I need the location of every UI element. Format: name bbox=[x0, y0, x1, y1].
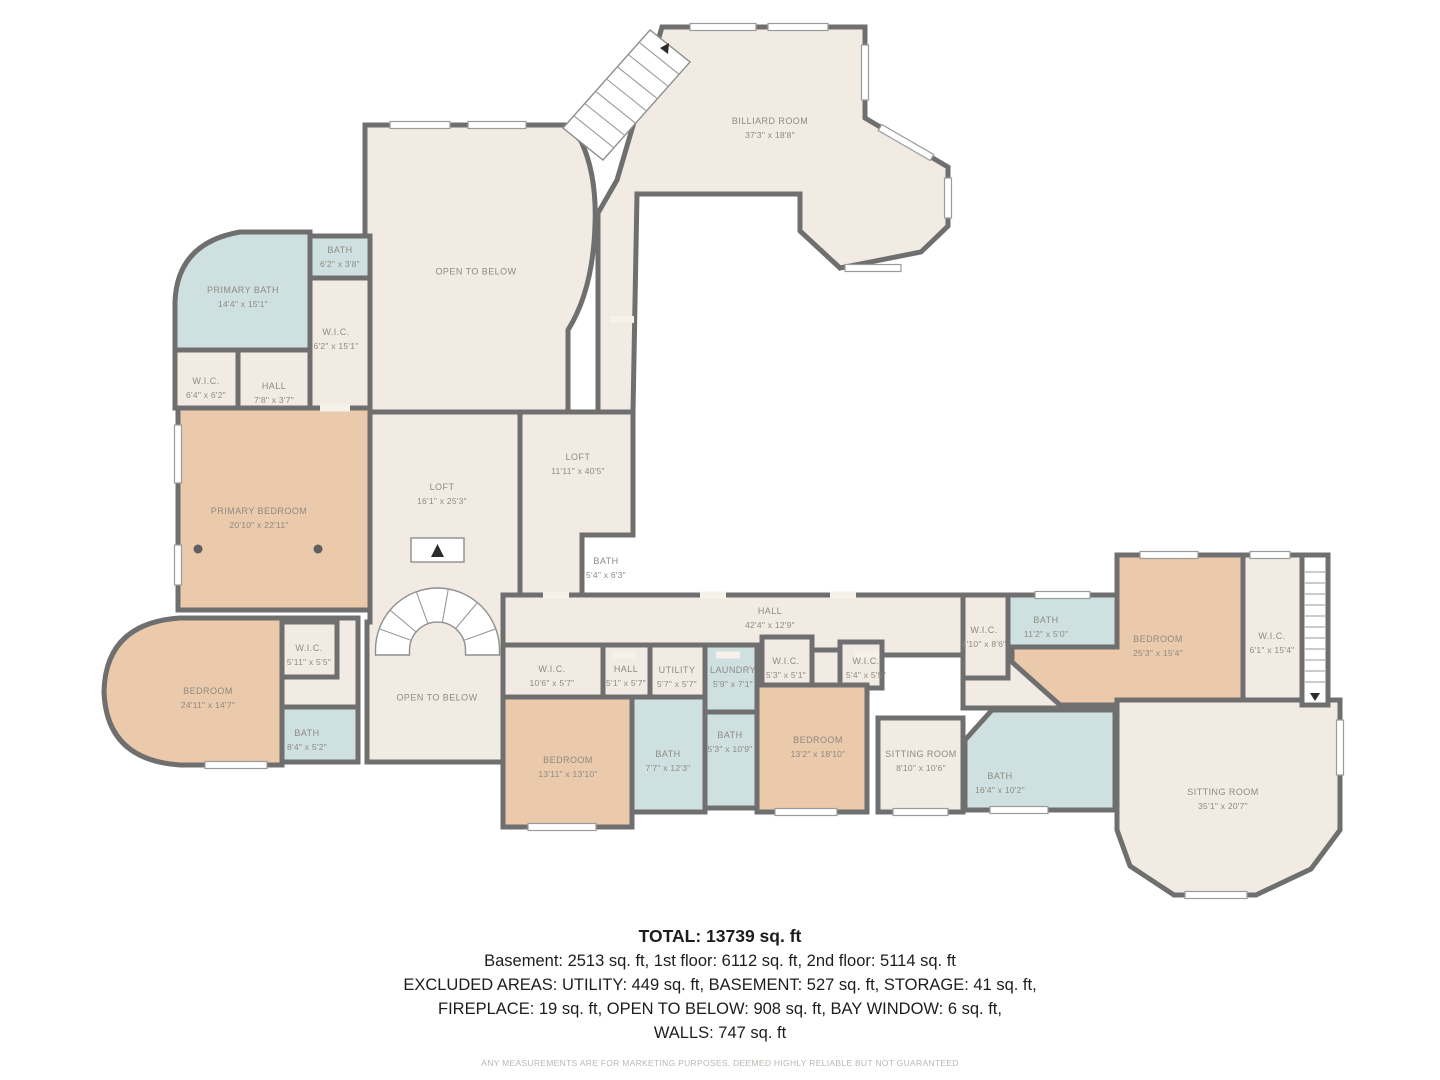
room-name: HALL bbox=[745, 605, 795, 619]
room-dims: 6'2" x 3'8" bbox=[320, 257, 360, 270]
floorplan-svg bbox=[0, 0, 1440, 1080]
room-dims: 42'4" x 12'9" bbox=[745, 618, 795, 631]
room-dims: 5'1" x 5'7" bbox=[606, 676, 646, 689]
room-name: W.I.C. bbox=[287, 642, 331, 656]
room-label-open-to-below-top: OPEN TO BELOW bbox=[435, 265, 516, 279]
window bbox=[1250, 552, 1290, 559]
room-name: HALL bbox=[254, 380, 294, 394]
window bbox=[205, 762, 267, 769]
room-label-bath-164: BATH 16'4" x 10'2" bbox=[975, 770, 1025, 796]
room-name: HALL bbox=[606, 663, 646, 677]
window bbox=[862, 45, 869, 100]
room-dims: 5'9" x 7'1" bbox=[710, 677, 756, 690]
room-dims: 20'10" x 22'11" bbox=[211, 518, 307, 531]
window bbox=[175, 545, 182, 585]
room-dims: 8'4" x 5'2" bbox=[287, 740, 327, 753]
room-name: PRIMARY BEDROOM bbox=[211, 505, 307, 519]
door-opening bbox=[700, 592, 726, 599]
room-label-hall-51: HALL 5'1" x 5'7" bbox=[606, 663, 646, 689]
door-opening bbox=[612, 652, 636, 659]
room-label-primary-bedroom: PRIMARY BEDROOM 20'10" x 22'11" bbox=[211, 505, 307, 531]
wall-post bbox=[194, 545, 203, 554]
room-dims: 5'3" x 5'1" bbox=[766, 668, 806, 681]
room-name: BATH bbox=[646, 748, 691, 762]
room-label-sitting-810: SITTING ROOM 8'10" x 10'6" bbox=[885, 748, 956, 774]
room-dims: 5'3" x 10'9" bbox=[708, 742, 753, 755]
room-label-wic-511: W.I.C. 5'11" x 5'5" bbox=[287, 642, 331, 668]
room-name: LAUNDRY bbox=[710, 664, 756, 678]
room-dims: 11'2" x 5'0" bbox=[1024, 627, 1068, 640]
room-label-bedroom-253: BEDROOM 25'3" x 15'4" bbox=[1133, 633, 1183, 659]
room-label-bath-84: BATH 8'4" x 5'2" bbox=[287, 727, 327, 753]
room-name: BEDROOM bbox=[1133, 633, 1183, 647]
room-name: BATH bbox=[586, 555, 626, 569]
room-name: BATH bbox=[320, 244, 360, 258]
room-name: OPEN TO BELOW bbox=[435, 265, 516, 279]
room-name: PRIMARY BATH bbox=[207, 284, 279, 298]
room-name: BATH bbox=[1024, 614, 1068, 628]
room-label-open-to-below-bottom: OPEN TO BELOW bbox=[396, 691, 477, 705]
door-opening bbox=[610, 316, 634, 323]
room-name: BILLIARD ROOM bbox=[732, 115, 808, 129]
summary-line-excluded-2: FIREPLACE: 19 sq. ft, OPEN TO BELOW: 908… bbox=[0, 997, 1440, 1021]
room-dims: 7'8" x 3'7" bbox=[254, 393, 294, 406]
room-label-bedroom-2411: BEDROOM 24'11" x 14'7" bbox=[181, 685, 235, 711]
room-name: SITTING ROOM bbox=[1187, 786, 1258, 800]
summary-disclaimer: ANY MEASUREMENTS ARE FOR MARKETING PURPO… bbox=[0, 1058, 1440, 1068]
room-label-hall-long: HALL 42'4" x 12'9" bbox=[745, 605, 795, 631]
room-label-bath-top: BATH 6'2" x 3'8" bbox=[320, 244, 360, 270]
room-dims: 8'10" x 10'6" bbox=[885, 761, 956, 774]
window bbox=[468, 122, 526, 129]
room-label-billiard-room: BILLIARD ROOM 37'3" x 18'8" bbox=[732, 115, 808, 141]
window bbox=[1337, 720, 1344, 775]
room-shape-bath-53 bbox=[705, 712, 757, 808]
room-label-wic-61: W.I.C. 6'1" x 15'4" bbox=[1250, 630, 1295, 656]
window bbox=[768, 24, 828, 31]
room-name: LOFT bbox=[417, 481, 467, 495]
room-dims: 6'2" x 15'1" bbox=[314, 339, 359, 352]
window bbox=[390, 122, 450, 129]
room-label-wic-54: W.I.C. 5'4" x 5'5" bbox=[846, 655, 886, 681]
room-dims: 16'1" x 25'3" bbox=[417, 494, 467, 507]
door-opening bbox=[716, 652, 740, 659]
room-dims: 14'4" x 15'1" bbox=[207, 297, 279, 310]
window bbox=[175, 425, 182, 483]
room-dims: 5'4" x 6'3" bbox=[586, 568, 626, 581]
summary-line-excluded-1: EXCLUDED AREAS: UTILITY: 449 sq. ft, BAS… bbox=[0, 973, 1440, 997]
room-label-laundry: LAUNDRY 5'9" x 7'1" bbox=[710, 664, 756, 690]
window bbox=[528, 824, 596, 831]
door-opening bbox=[320, 405, 350, 412]
room-dims: 13'2" x 18'10" bbox=[791, 747, 846, 760]
room-label-wic-small: W.I.C. 6'4" x 6'2" bbox=[186, 375, 226, 401]
door-opening bbox=[543, 592, 569, 599]
room-name: UTILITY bbox=[657, 664, 697, 678]
room-label-loft-left: LOFT 16'1" x 25'3" bbox=[417, 481, 467, 507]
window bbox=[990, 807, 1048, 814]
room-name: BEDROOM bbox=[791, 734, 846, 748]
room-label-bath-mid: BATH 5'4" x 6'3" bbox=[586, 555, 626, 581]
room-dims: 24'11" x 14'7" bbox=[181, 698, 235, 711]
wall-post bbox=[314, 545, 323, 554]
room-label-primary-bath: PRIMARY BATH 14'4" x 15'1" bbox=[207, 284, 279, 310]
room-name: BATH bbox=[287, 727, 327, 741]
window bbox=[945, 178, 952, 218]
room-name: SITTING ROOM bbox=[885, 748, 956, 762]
room-name: OPEN TO BELOW bbox=[396, 691, 477, 705]
room-label-wic-410: W.I.C. 4'10" x 8'6" bbox=[962, 624, 1007, 650]
room-name: W.I.C. bbox=[186, 375, 226, 389]
floorplan: BILLIARD ROOM 37'3" x 18'8" OPEN TO BELO… bbox=[0, 0, 1440, 1080]
summary-footer: TOTAL: 13739 sq. ft Basement: 2513 sq. f… bbox=[0, 926, 1440, 1068]
room-dims: 7'7" x 12'3" bbox=[646, 761, 691, 774]
room-dims: 11'11" x 40'5" bbox=[551, 464, 605, 477]
room-dims: 25'3" x 15'4" bbox=[1133, 646, 1183, 659]
room-label-hall-small: HALL 7'8" x 3'7" bbox=[254, 380, 294, 406]
door-opening bbox=[830, 592, 856, 599]
window bbox=[1140, 552, 1198, 559]
room-name: BATH bbox=[708, 729, 753, 743]
room-name: BEDROOM bbox=[181, 685, 235, 699]
room-dims: 16'4" x 10'2" bbox=[975, 783, 1025, 796]
room-dims: 5'11" x 5'5" bbox=[287, 655, 331, 668]
room-label-loft-right: LOFT 11'11" x 40'5" bbox=[551, 451, 605, 477]
room-label-bedroom-132: BEDROOM 13'2" x 18'10" bbox=[791, 734, 846, 760]
room-label-wic-106: W.I.C. 10'6" x 5'7" bbox=[530, 663, 575, 689]
window bbox=[1035, 592, 1090, 599]
room-label-wic-tall: W.I.C. 6'2" x 15'1" bbox=[314, 326, 359, 352]
window bbox=[690, 24, 756, 31]
room-label-bath-112: BATH 11'2" x 5'0" bbox=[1024, 614, 1068, 640]
summary-total: TOTAL: 13739 sq. ft bbox=[0, 926, 1440, 947]
room-name: W.I.C. bbox=[962, 624, 1007, 638]
room-name: W.I.C. bbox=[846, 655, 886, 669]
room-dims: 6'4" x 6'2" bbox=[186, 388, 226, 401]
room-dims: 13'11" x 13'10" bbox=[538, 767, 597, 780]
room-name: W.I.C. bbox=[530, 663, 575, 677]
room-name: BEDROOM bbox=[538, 754, 597, 768]
room-label-wic-53: W.I.C. 5'3" x 5'1" bbox=[766, 655, 806, 681]
window bbox=[893, 809, 948, 816]
room-dims: 6'1" x 15'4" bbox=[1250, 643, 1295, 656]
room-name: W.I.C. bbox=[1250, 630, 1295, 644]
room-dims: 10'6" x 5'7" bbox=[530, 676, 575, 689]
room-label-bath-77: BATH 7'7" x 12'3" bbox=[646, 748, 691, 774]
room-dims: 4'10" x 8'6" bbox=[962, 637, 1007, 650]
summary-line-walls: WALLS: 747 sq. ft bbox=[0, 1021, 1440, 1045]
room-name: W.I.C. bbox=[314, 326, 359, 340]
room-label-bath-53: BATH 5'3" x 10'9" bbox=[708, 729, 753, 755]
room-dims: 35'1" x 20'7" bbox=[1187, 799, 1258, 812]
room-name: W.I.C. bbox=[766, 655, 806, 669]
room-label-bedroom-1311: BEDROOM 13'11" x 13'10" bbox=[538, 754, 597, 780]
room-dims: 5'7" x 5'7" bbox=[657, 677, 697, 690]
window bbox=[775, 809, 837, 816]
room-label-utility: UTILITY 5'7" x 5'7" bbox=[657, 664, 697, 690]
staircase-right bbox=[1302, 555, 1328, 705]
window bbox=[845, 265, 901, 272]
room-dims: 37'3" x 18'8" bbox=[732, 128, 808, 141]
window bbox=[1185, 892, 1247, 899]
room-name: BATH bbox=[975, 770, 1025, 784]
summary-line-floors: Basement: 2513 sq. ft, 1st floor: 6112 s… bbox=[0, 949, 1440, 973]
room-label-sitting-351: SITTING ROOM 35'1" x 20'7" bbox=[1187, 786, 1258, 812]
room-shape-loft-central bbox=[367, 412, 520, 762]
room-dims: 5'4" x 5'5" bbox=[846, 668, 886, 681]
room-name: LOFT bbox=[551, 451, 605, 465]
